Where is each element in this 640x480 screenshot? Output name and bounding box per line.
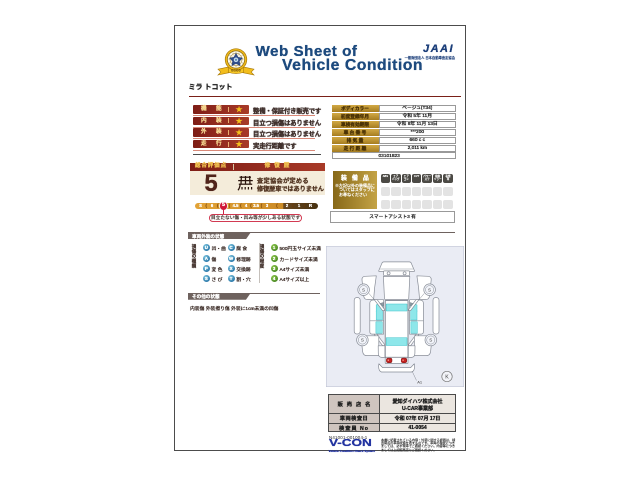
- svg-text:A1: A1: [417, 379, 423, 384]
- svg-text:S: S: [362, 287, 365, 292]
- svg-text:S: S: [361, 338, 364, 343]
- svg-text:ECOS: ECOS: [231, 69, 241, 73]
- svg-text:S: S: [429, 338, 432, 343]
- svg-text:K: K: [445, 374, 449, 380]
- svg-text:S: S: [428, 287, 431, 292]
